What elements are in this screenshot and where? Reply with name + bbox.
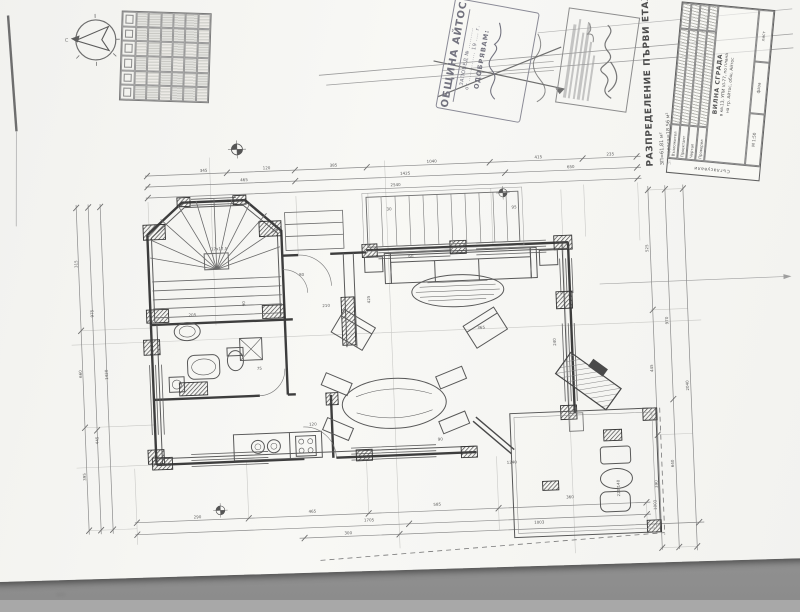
dim-label: 660 [78,370,83,378]
dim-label: 120 [263,165,271,170]
side-label: Съгласували [676,163,748,175]
dim-label: 970 [664,316,669,324]
dim-label: 30 [386,206,392,211]
bathtub [187,354,220,379]
dim-label: 300 [344,530,352,535]
scanned-paper-sheet: 3451203851040415235465142565025403156603… [0,0,800,582]
north-label: С [65,38,69,44]
dim-label: 1003 [652,499,657,510]
furniture [316,244,628,441]
dimension-ticks [72,151,703,573]
registry-signature [591,18,629,105]
dim-label: 465 [308,509,316,514]
registry-stamp [555,7,640,112]
dim-label: 95 [511,204,517,209]
dim-label: 640 [670,459,675,467]
dim-label: 210 [322,303,330,308]
dim-label: 80 [299,272,305,277]
dim-label: 445 [94,436,99,444]
sheet-content: 3451203851040415235465142565025403156603… [0,0,800,612]
north-arrow-icon [66,12,126,72]
dim-label: 395 [82,473,87,481]
door-swings [254,254,338,461]
dimension-labels: 3451203851040415235465142565025403156603… [70,149,695,546]
dim-label: 345 [200,168,208,173]
dim-label: 1040 [426,158,437,163]
dim-label: 975 [89,309,94,317]
dim-label: 465 [240,177,248,182]
dim-label: 425 [366,295,371,303]
dim-label: 120 [309,421,317,426]
north-compass: С [66,12,126,72]
dim-label: 1705 [364,517,375,522]
title-block: Съгласували Възложител Проектант Чертал … [666,1,775,181]
dim-label: 415 [534,154,542,159]
deck-terrace [362,187,524,251]
dim-label: 290 [194,514,202,519]
fold-line [8,15,16,131]
bathroom [167,320,264,397]
entry-porch [285,210,344,250]
dim-label: 445 [649,364,654,372]
dim-label: 385 [330,162,338,167]
sink [174,322,201,341]
windows [143,184,579,468]
dim-label: 240 [552,338,557,346]
armchair [463,307,507,348]
dim-label: 525 [644,244,649,252]
dim-label: 1420 [104,369,109,380]
axis-lines [64,138,710,573]
dim-label: 360 [566,494,574,499]
dim-label: 315 [73,260,78,268]
dim-label: 1003 [534,519,545,524]
dim-label: 650 [567,164,575,169]
dim-label: 90 [438,436,444,441]
schedule-table [119,10,212,103]
coffee-table [411,273,504,309]
dim-label: 2540 [390,182,401,187]
scanned-floor-plan-page: { "document": { "drawing_title_vertical"… [0,0,800,600]
dim-label: 75 [257,366,263,371]
dim-label: 585 [433,502,441,507]
dim-label: 1425 [400,170,411,175]
dim-label: 2040 [685,380,690,391]
dim-label: 17x17,5 [211,246,228,252]
dim-label: 235 [606,151,614,156]
kitchen [233,431,322,461]
section-arrow [600,274,792,287]
